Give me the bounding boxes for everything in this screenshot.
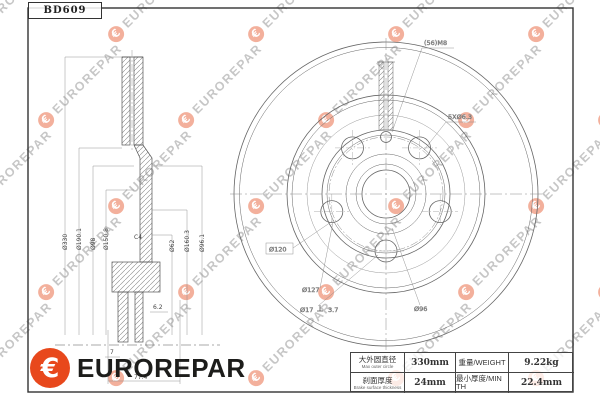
thickness-cn: 刹面厚度 — [363, 377, 393, 385]
front-view — [230, 38, 542, 352]
table-cell-thickness-value: 24mm — [405, 373, 456, 393]
dim-flange-diameter: Ø160.3 — [184, 230, 191, 252]
max-outer-value: 330mm — [411, 358, 449, 368]
table-cell-max-outer-value: 330mm — [405, 353, 456, 373]
max-outer-en: Max outer circle — [362, 364, 394, 369]
max-outer-cn: 大外圆直径 — [359, 356, 397, 364]
front-view-labels: (56)M8 5XØ6.3 Ø120 Ø127 Ø17 3.7 Ø96 — [266, 39, 476, 314]
dim-hat-diameter: Ø190.1 — [76, 228, 83, 250]
dim-offset: 6.2 — [153, 304, 163, 311]
bolt-count-label: 5XØ6.3 — [448, 113, 472, 121]
table-cell-minth-value: 22.4mm — [509, 373, 574, 393]
drawing-frame — [28, 8, 573, 392]
drawing-page: €EUROREPAR€EUROREPAR€EUROREPAR€EUROREPAR… — [0, 0, 600, 400]
weight-label: 重量/WEIGHT — [458, 359, 505, 367]
table-cell-thickness-label: 刹面厚度 Brake surface thickness — [351, 373, 405, 393]
thickness-en: Brake surface thickness — [354, 385, 402, 390]
part-number-box: BD609 — [28, 2, 102, 19]
section-view — [55, 50, 220, 345]
technical-drawing: Ø330 Ø190.1 Ø98 Ø150.8 Ø62 Ø160.3 Ø96.1 … — [0, 0, 600, 400]
dim-outer-diameter: Ø330 — [62, 234, 69, 250]
set-screw-label: (56)M8 — [424, 39, 447, 47]
depth-label: 3.7 — [328, 306, 338, 314]
brand-wordmark: EUROREPAR — [77, 353, 246, 384]
table-cell-weight-value: 9.22kg — [509, 353, 574, 373]
dim-bore-diameter: Ø62 — [169, 239, 176, 252]
dim-band-diameter: Ø150.8 — [103, 228, 110, 250]
thickness-value: 24mm — [414, 378, 446, 388]
table-cell-minth-label: 最小厚度/MIN TH — [456, 373, 509, 393]
part-number: BD609 — [44, 5, 87, 16]
minth-value: 22.4mm — [521, 378, 562, 388]
minth-label: 最小厚度/MIN TH — [456, 375, 508, 391]
eurorepar-euro-icon: € — [30, 348, 70, 388]
table-cell-weight-label: 重量/WEIGHT — [456, 353, 509, 373]
depth-symbol-icon — [317, 305, 323, 311]
weight-value: 9.22kg — [524, 358, 558, 368]
dim-hub-diameter: Ø96.1 — [199, 234, 206, 252]
bolt-circle-label: Ø120 — [269, 246, 287, 254]
table-cell-max-outer-label: 大外圆直径 Max outer circle — [351, 353, 405, 373]
brand-logo: € EUROREPAR — [30, 348, 246, 388]
hub-dia-label: Ø96 — [414, 305, 427, 313]
spec-table: 大外圆直径 Max outer circle 330mm 重量/WEIGHT 9… — [350, 352, 573, 392]
dim-inner-diameter: Ø98 — [90, 237, 97, 250]
section-dimension-lines — [65, 57, 202, 384]
bolt-hole-dia-label: Ø17 — [300, 306, 313, 314]
chamfer-label: C4 — [134, 234, 142, 241]
inner-dia-label: Ø127 — [302, 286, 320, 294]
